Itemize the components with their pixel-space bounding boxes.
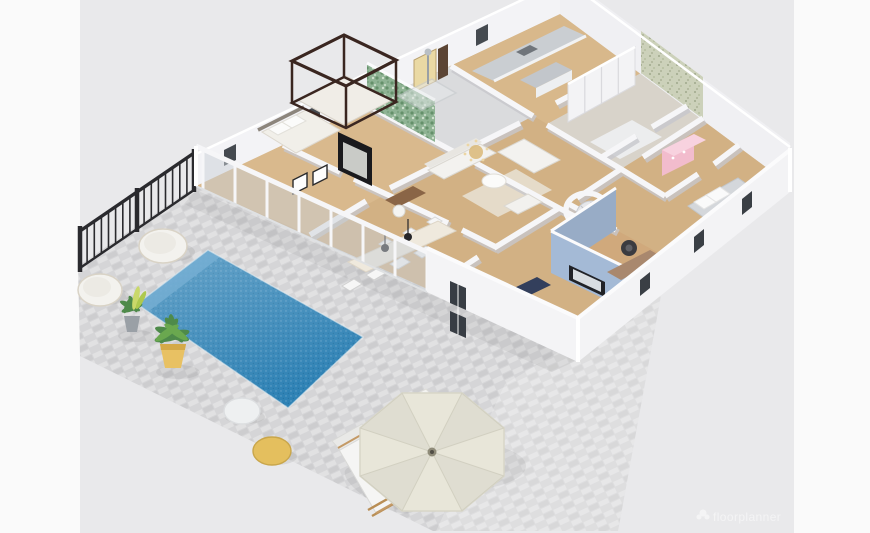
right-margin xyxy=(794,0,870,533)
dresser-knob xyxy=(683,151,686,154)
dresser-knob xyxy=(672,157,675,160)
floorplan-render: floorplanner xyxy=(0,0,870,533)
pouf-white xyxy=(224,398,260,424)
watermark-text: floorplanner xyxy=(713,510,781,524)
plant-pot-rim xyxy=(160,344,186,350)
flower-icon-petal xyxy=(697,515,702,520)
parasol-pole-center xyxy=(430,450,434,454)
daybed-2-cushion xyxy=(83,277,111,297)
flower-icon-petal xyxy=(705,515,710,520)
left-margin xyxy=(0,0,80,533)
pouf-yellow xyxy=(253,437,291,465)
chandelier xyxy=(469,145,483,159)
office-chair-seat xyxy=(626,245,633,252)
door-frame-dark xyxy=(438,44,448,80)
coffee-table xyxy=(482,174,506,188)
daybed-1-cushion xyxy=(144,232,176,254)
desk-chair-white xyxy=(393,205,405,217)
floorplan-canvas: floorplanner xyxy=(0,0,870,533)
shower-head xyxy=(425,49,432,56)
